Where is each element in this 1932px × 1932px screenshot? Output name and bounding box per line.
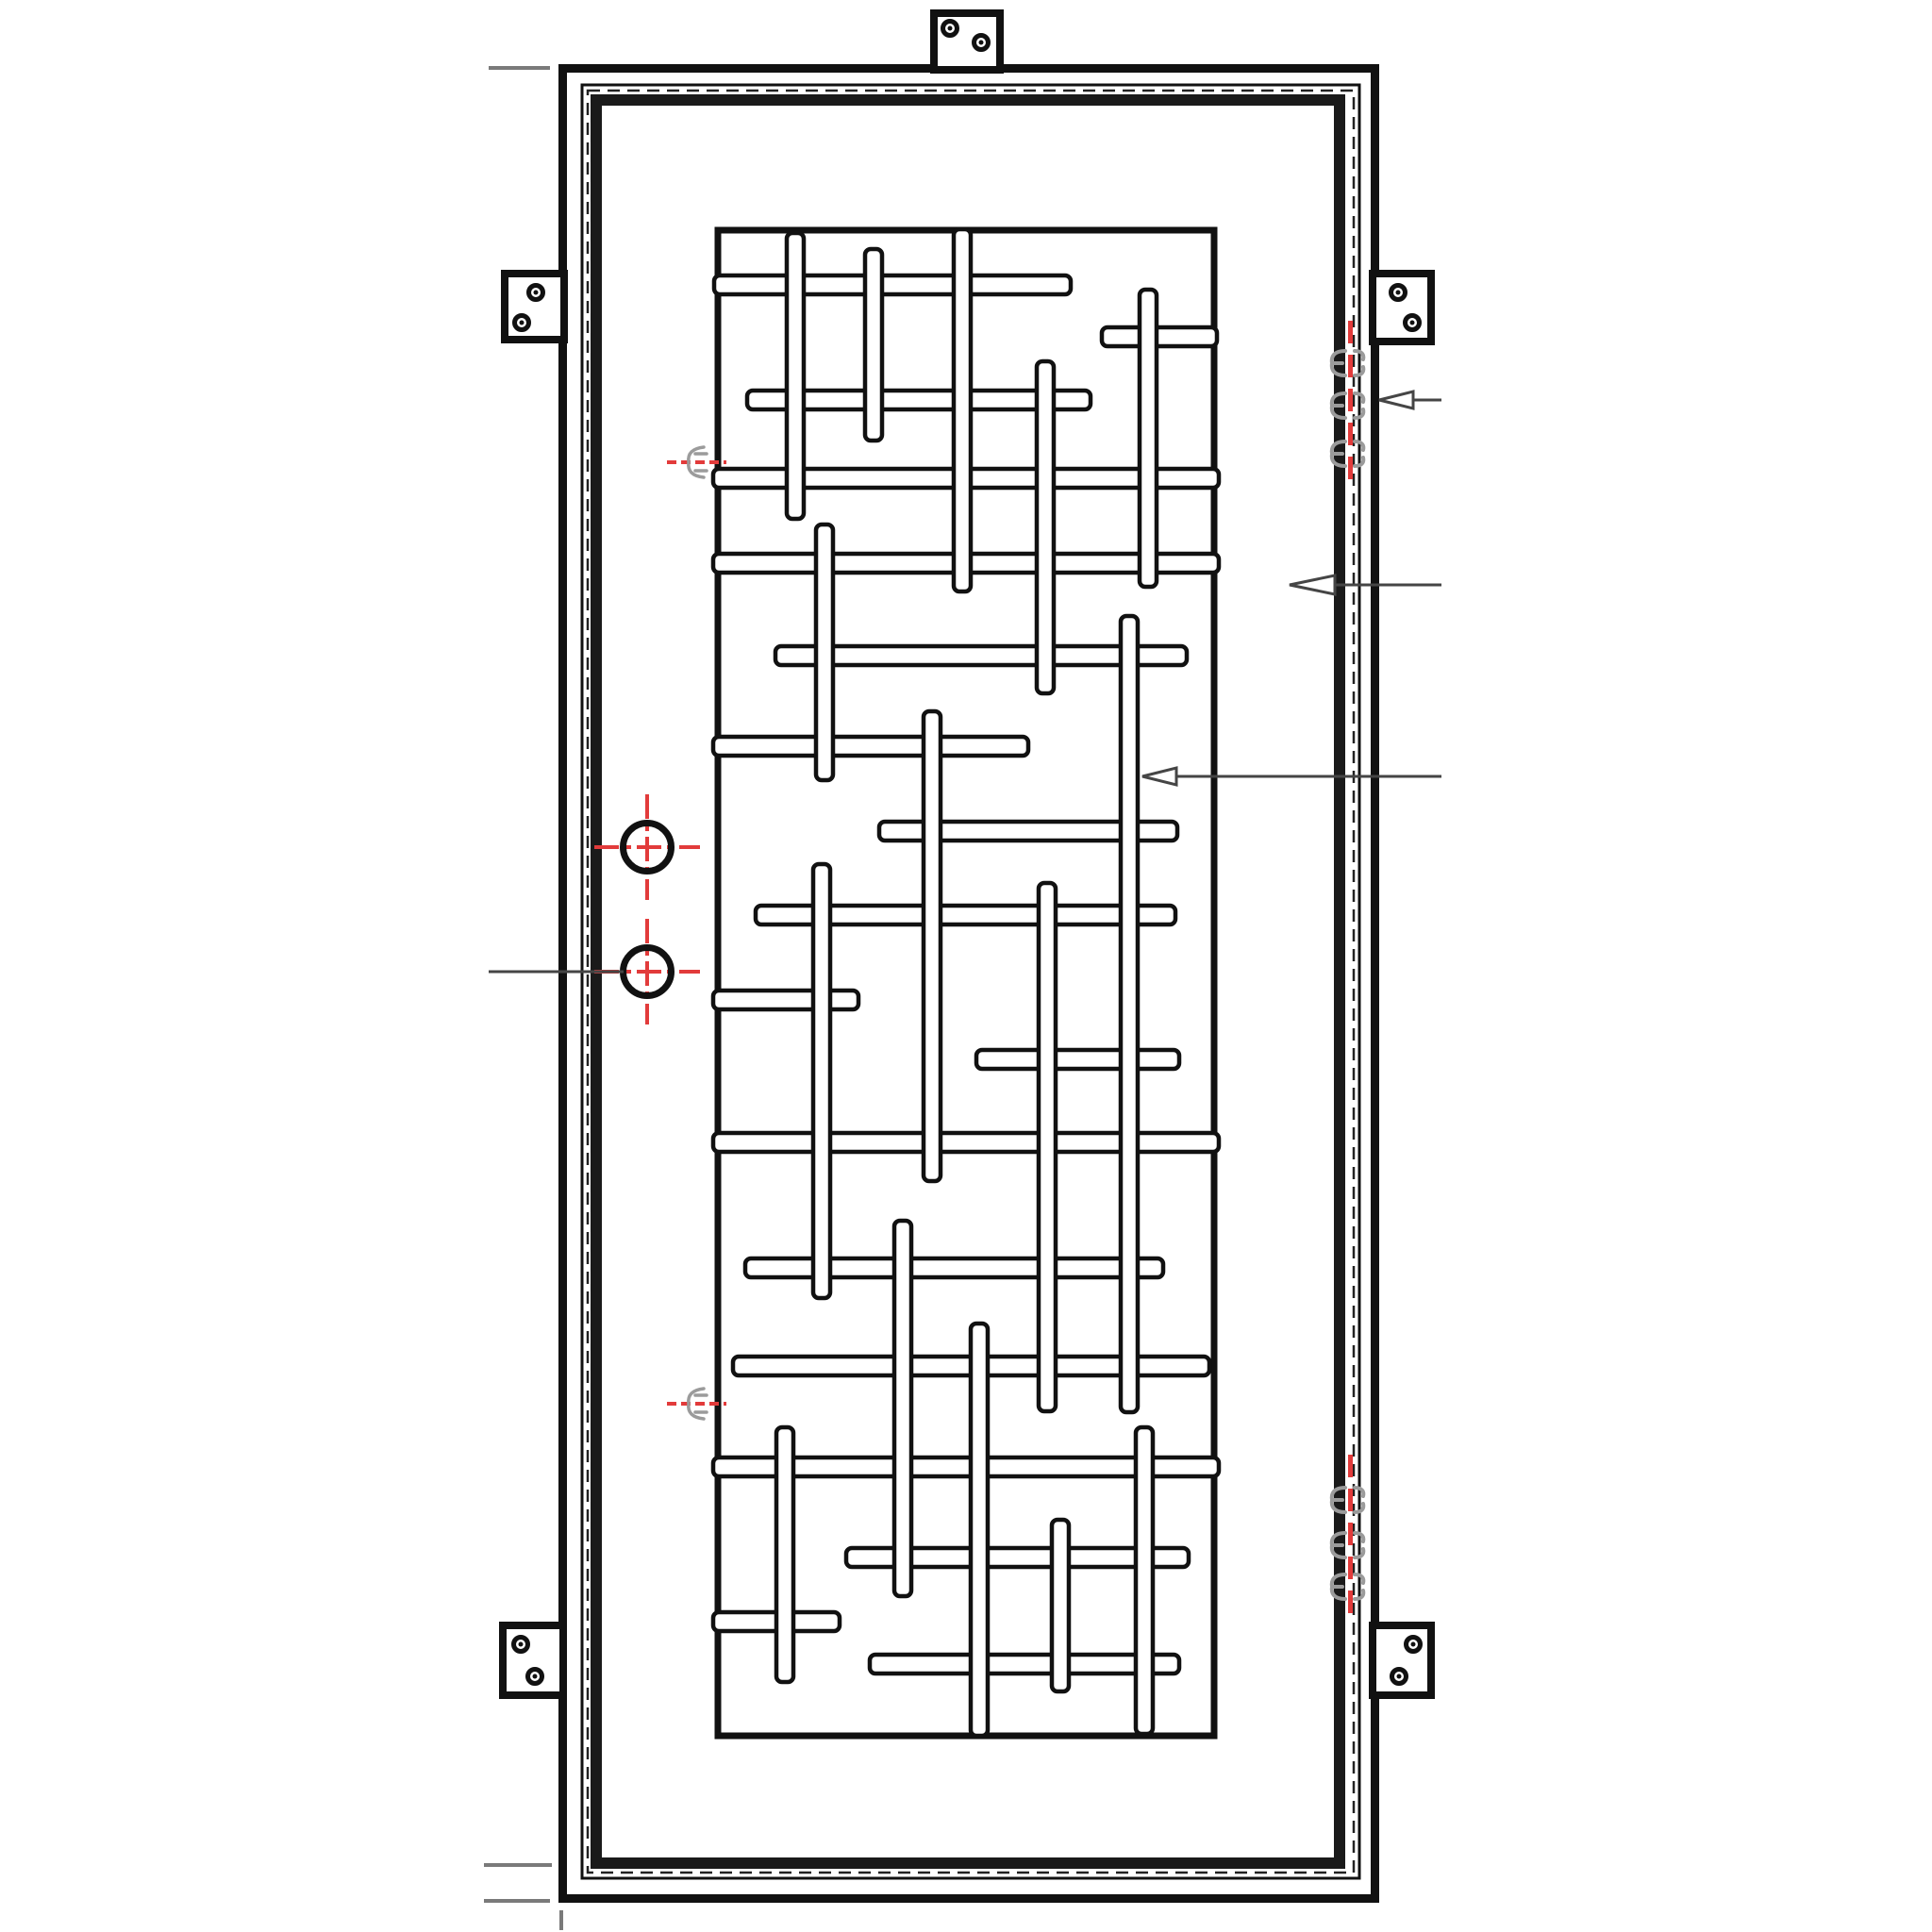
grille-vertical-bar: [954, 229, 971, 591]
hardware-layer: [594, 794, 700, 1024]
drawing-sheet: [0, 0, 1932, 1932]
grille-vertical-bar: [865, 249, 882, 441]
mounting-tab-left-upper-screw-hole-center: [534, 291, 539, 295]
grille-vertical-bar: [1121, 616, 1138, 1412]
mounting-tab-right-upper: [1373, 274, 1431, 341]
grille-vertical-bar: [894, 1221, 911, 1596]
grille-horizontal-bar: [713, 737, 1028, 756]
leader-door-face-callout-arrowhead: [1290, 575, 1335, 594]
grille-horizontal-bar: [745, 1258, 1163, 1277]
mounting-tab-right-upper-screw-hole-center: [1410, 321, 1415, 325]
grille-horizontal-bar: [714, 275, 1071, 294]
mounting-tab-left-upper-screw-hole-center: [520, 321, 525, 325]
grille-vertical-bar: [1052, 1520, 1069, 1691]
grille-vertical-bar: [1140, 290, 1157, 587]
grille-vertical-bar: [776, 1427, 793, 1682]
grille-vertical-bar: [924, 711, 941, 1181]
grille-horizontal-bar: [976, 1050, 1179, 1069]
mounting-tab-right-lower-screw-hole-center: [1411, 1642, 1416, 1647]
mounting-tab-top-screw-hole-center: [979, 41, 984, 45]
grille-horizontal-bar: [870, 1655, 1179, 1674]
grille-horizontal-bar: [1102, 327, 1217, 346]
grille-horizontal-bar: [713, 1133, 1219, 1152]
mounting-tab-left-lower-screw-hole-center: [533, 1674, 538, 1679]
mounting-tab-left-lower-screw-hole-center: [519, 1642, 524, 1647]
grille-vertical-bar: [1136, 1427, 1153, 1734]
grille-vertical-bar: [1039, 883, 1056, 1411]
leader-hinge-callout-arrowhead: [1379, 391, 1413, 408]
grille-vertical-bar: [1037, 361, 1054, 693]
grille-vertical-bar: [971, 1324, 988, 1736]
grille-vertical-bar: [816, 525, 833, 780]
grille-vertical-bar: [813, 864, 830, 1298]
grille-vertical-bar: [787, 233, 804, 519]
mounting-tab-right-lower-screw-hole-center: [1397, 1674, 1402, 1679]
mounting-tab-top-screw-hole-center: [948, 26, 953, 31]
mounting-tab-right-upper-screw-hole-center: [1396, 291, 1401, 295]
door-drawing-canvas: [0, 0, 1932, 1932]
grille-horizontal-bar: [713, 991, 858, 1009]
